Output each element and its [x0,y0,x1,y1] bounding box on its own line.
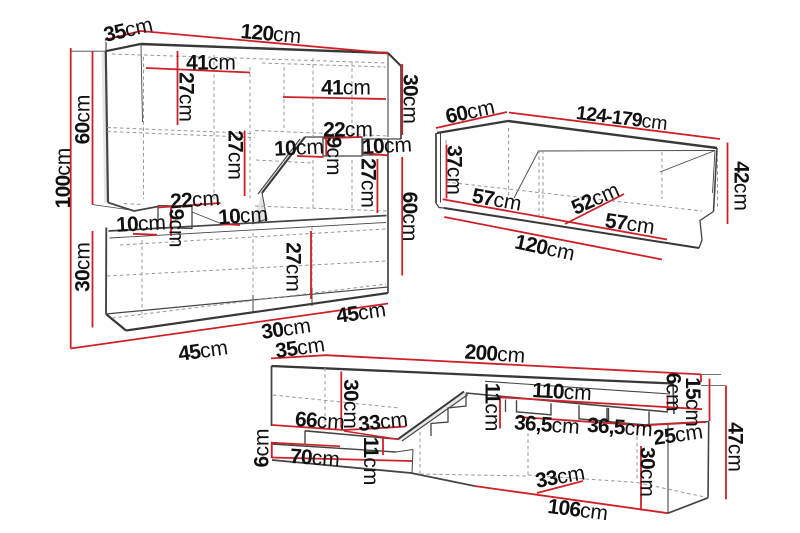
svg-text:70cm: 70cm [289,445,340,471]
svg-text:27cm: 27cm [174,72,197,122]
svg-text:37cm: 37cm [442,145,465,195]
svg-text:36,5cm: 36,5cm [513,411,580,439]
svg-text:11cm: 11cm [359,437,382,486]
svg-text:100cm: 100cm [52,148,75,209]
svg-text:27cm: 27cm [281,242,304,292]
svg-text:6cm: 6cm [251,429,274,468]
svg-text:110cm: 110cm [532,379,593,405]
svg-text:10cm: 10cm [274,135,325,161]
svg-text:27cm: 27cm [223,130,246,180]
svg-text:10cm: 10cm [362,133,413,159]
svg-text:30cm: 30cm [72,242,95,292]
svg-text:36,5cm: 36,5cm [586,414,653,442]
svg-text:11cm: 11cm [480,383,503,432]
svg-text:10cm: 10cm [217,203,268,229]
svg-text:9cm: 9cm [164,209,187,248]
svg-text:60cm: 60cm [72,95,95,145]
svg-text:30cm: 30cm [398,74,421,124]
svg-text:66cm: 66cm [294,408,345,434]
svg-text:60cm: 60cm [398,192,421,242]
svg-text:10cm: 10cm [116,211,167,237]
svg-text:42cm: 42cm [729,161,752,211]
svg-text:30cm: 30cm [635,447,658,497]
svg-text:9cm: 9cm [322,137,345,176]
svg-text:47cm: 47cm [723,422,746,472]
svg-text:27cm: 27cm [356,158,379,208]
svg-text:41cm: 41cm [321,77,371,100]
svg-text:200cm: 200cm [464,341,526,368]
